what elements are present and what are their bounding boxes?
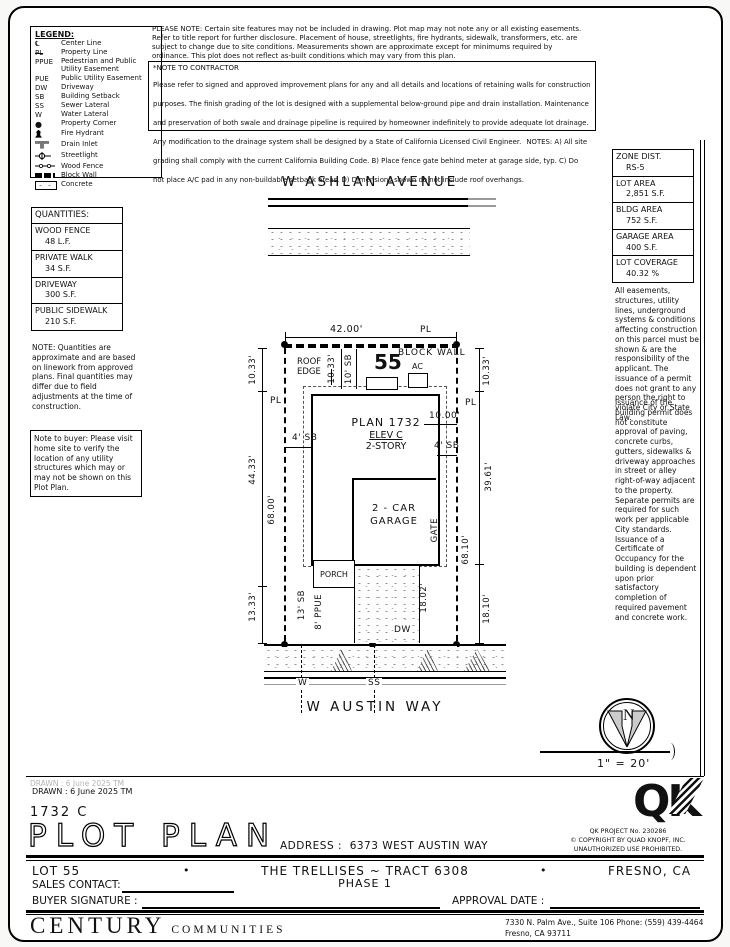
street-bottom-label: W AUSTIN WAY — [285, 699, 465, 715]
quantities-row: DRIVEWAY300 S.F. — [32, 278, 122, 305]
century-address-line2: Fresno, CA 93711 — [505, 928, 703, 939]
porch-label: PORCH — [320, 570, 348, 579]
dim-tick — [258, 391, 267, 392]
road-line — [468, 198, 496, 200]
fire-hydrant-icon — [35, 130, 42, 138]
roof-edge-leader — [331, 369, 332, 385]
quantities-row: WOOD FENCE48 L.F. — [32, 224, 122, 251]
property-corner — [281, 341, 288, 348]
footer-phase: PHASE 1 — [230, 877, 500, 890]
titleblock-rule — [26, 776, 704, 777]
dim-line — [286, 447, 311, 448]
ac-pad — [408, 373, 428, 388]
road-line — [468, 205, 496, 207]
property-line-right — [456, 348, 458, 641]
setback-symbol: SB — [35, 93, 61, 101]
legend-item: PPUEPedestrian and Public Utility Easeme… — [35, 58, 157, 74]
legend-item: Concrete — [35, 181, 157, 192]
plan-story: 2-STORY — [336, 441, 436, 452]
address-value: 6373 WEST AUSTIN WAY — [350, 840, 488, 852]
gate-label: GATE — [430, 518, 440, 542]
legend-item: ●Property Corner — [35, 120, 157, 129]
pl-label: PL — [465, 398, 476, 408]
contractor-note-body: Please refer to signed and approved impr… — [153, 81, 590, 146]
dim-side-sb-right: 4' SB — [434, 441, 459, 451]
dim-tick — [475, 643, 484, 644]
sales-contact-label: SALES CONTACT: — [32, 879, 121, 891]
quantities-title: QUANTITIES: — [32, 208, 122, 224]
sales-contact-line — [122, 891, 234, 893]
qk-copyright: © COPYRIGHT BY QUAD KNOPF, INC. — [552, 836, 704, 845]
quantities-table: QUANTITIES: WOOD FENCE48 L.F. PRIVATE WA… — [31, 207, 123, 331]
zoning-row: ZONE DIST.RS-5 — [613, 150, 693, 177]
plot-plan-sheet: { "legend": { "title": "LEGEND:", "items… — [0, 0, 730, 947]
driveway-symbol: DW — [35, 84, 61, 92]
sewer-lateral-label: SS — [366, 678, 382, 688]
century-logo-name: CENTURY — [30, 913, 165, 939]
address-label: ADDRESS : — [280, 840, 342, 852]
buyer-note-box: Note to buyer: Please visit home site to… — [30, 430, 142, 497]
legend-item: Streetlight — [35, 152, 157, 162]
legend-item: Block Wall — [35, 172, 157, 180]
dim-front-sb-depth: 10.33' — [327, 354, 337, 384]
quantities-row: PUBLIC SIDEWALK210 S.F. — [32, 304, 122, 330]
margin-line — [704, 140, 705, 776]
water-lateral-label: W — [296, 678, 309, 688]
please-note: PLEASE NOTE: Certain site features may n… — [152, 25, 588, 61]
garage-label: 2 - CAR — [352, 503, 436, 514]
dim-line — [356, 349, 357, 389]
drain-inlet-icon — [35, 141, 49, 149]
dim-side-sb-left: 4' SB — [292, 433, 317, 443]
porch-outline: PORCH — [313, 560, 355, 588]
zoning-row: BLDG AREA752 S.F. — [613, 203, 693, 230]
approval-date-label: APPROVAL DATE : — [452, 895, 544, 907]
legend-item: Drain Inlet — [35, 141, 157, 151]
property-line-symbol: PL — [35, 49, 61, 57]
plan-name: PLAN 1732 — [336, 416, 436, 429]
century-logo: CENTURY COMMUNITIES — [30, 913, 285, 939]
dim-tick — [258, 348, 267, 349]
ac-label: AC — [412, 362, 423, 371]
footer-lot: LOT 55 — [32, 864, 80, 878]
address-line: ADDRESS : 6373 WEST AUSTIN WAY — [280, 840, 488, 852]
streetlight-icon — [35, 152, 51, 160]
qk-project-number: QK PROJECT No. 230286 — [552, 827, 704, 836]
ppue-symbol: PPUE — [35, 58, 61, 66]
dim-line — [341, 349, 342, 389]
legend-item: PLProperty Line — [35, 49, 157, 57]
garage-label: GARAGE — [352, 516, 436, 527]
dim-left-bottom: 13.33' — [248, 592, 258, 622]
dim-top-width: 42.00' — [330, 324, 363, 335]
footer-tract: THE TRELLISES ~ TRACT 6308 — [230, 864, 500, 878]
zoning-row: LOT COVERAGE40.32 % — [613, 256, 693, 282]
dim-line — [262, 348, 263, 644]
plan-elev: ELEV C — [336, 430, 436, 441]
dim-left-depth: 68.00' — [267, 495, 277, 525]
legend-title: LEGEND: — [35, 30, 157, 39]
footer-bullet: • — [540, 864, 547, 877]
legend-item: PUEPublic Utility Easement — [35, 75, 157, 83]
sewer-symbol: SS — [35, 102, 61, 110]
buyer-signature-label: BUYER SIGNATURE : — [32, 895, 138, 907]
pue-symbol: PUE — [35, 75, 61, 83]
wood-fence-icon — [35, 163, 55, 169]
scale-label: 1" = 20' — [597, 757, 650, 770]
dim-street-sb: 13' SB — [297, 590, 307, 620]
quantities-note: NOTE: Quantities are approximate and are… — [32, 343, 138, 411]
north-arrow — [597, 696, 657, 756]
drawn-label: DRAWN : 6 June 2025 TM — [32, 787, 132, 796]
dim-right-bottom: 18.10' — [482, 594, 492, 624]
dim-front-sb: 10' SB — [344, 354, 354, 384]
qk-prohibited: UNAUTHORIZED USE PROHIBITED. — [552, 845, 704, 854]
centerline-symbol: ℄ — [35, 40, 61, 48]
dim-right-mid: 39.61' — [484, 462, 494, 492]
scale-bar-end — [666, 743, 675, 760]
dim-right-depth: 68.10' — [461, 535, 471, 565]
road-line — [268, 205, 468, 207]
legend-item: SBBuilding Setback — [35, 93, 157, 101]
block-wall-label: BLOCK WALL — [398, 348, 466, 358]
dim-tick — [475, 348, 484, 349]
contractor-note-title: *NOTE TO CONTRACTOR — [153, 64, 591, 72]
dim-tick — [258, 586, 267, 587]
driveway-label: DW — [394, 625, 411, 635]
legend-item: ℄Center Line — [35, 40, 157, 48]
legend-item: Wood Fence — [35, 163, 157, 171]
dim-ppue: 8' PPUE — [314, 594, 324, 630]
dim-left-mid: 44.33' — [248, 455, 258, 485]
house-bump — [366, 377, 398, 390]
garage-wall — [352, 478, 436, 480]
dim-line — [437, 455, 457, 456]
block-wall-icon — [35, 173, 55, 178]
dim-tick — [475, 564, 484, 565]
street-top-label: W ASHLAN AVENUE — [272, 174, 468, 190]
dim-line — [285, 337, 457, 338]
property-line-left — [284, 348, 286, 641]
sidewalk-concrete — [268, 229, 470, 255]
zoning-table: ZONE DIST.RS-5 LOT AREA2,851 S.F. BLDG A… — [612, 149, 694, 283]
dim-right-top: 10.33' — [482, 356, 492, 386]
zoning-row: LOT AREA2,851 S.F. — [613, 177, 693, 204]
legend-box: LEGEND: ℄Center Line PLProperty Line PPU… — [30, 26, 162, 178]
footer-bullet: • — [183, 864, 190, 877]
century-logo-sub: COMMUNITIES — [171, 924, 285, 936]
north-label: N — [623, 707, 635, 725]
dim-drive-depth: 18.02' — [419, 583, 429, 613]
pl-label: PL — [420, 325, 431, 335]
dim-tick — [475, 391, 484, 392]
buyer-signature-line — [142, 907, 440, 909]
legend-item: DWDriveway — [35, 84, 157, 92]
footer-rule — [26, 855, 704, 858]
dim-line — [479, 348, 480, 644]
footer-rule — [26, 860, 704, 861]
dim-garage-offset: 10.00' — [429, 411, 460, 421]
road-line — [268, 198, 468, 200]
quantities-row: PRIVATE WALK34 S.F. — [32, 251, 122, 278]
easement-note-2: Issuance of the building permit does not… — [615, 398, 699, 622]
legend-item: WWater Lateral — [35, 111, 157, 119]
margin-line — [700, 140, 701, 776]
concrete-icon — [35, 181, 57, 190]
sheet-title: PLOT PLAN — [28, 818, 278, 854]
dim-tick — [258, 643, 267, 644]
legend-item: SSSewer Lateral — [35, 102, 157, 110]
qk-credit-block: QK PROJECT No. 230286 © COPYRIGHT BY QUA… — [552, 827, 704, 854]
water-symbol: W — [35, 111, 61, 119]
dim-line — [424, 424, 457, 425]
zoning-row: GARAGE AREA400 S.F. — [613, 230, 693, 257]
contractor-note-box: *NOTE TO CONTRACTOR Please refer to sign… — [148, 61, 596, 131]
approval-date-line — [550, 907, 700, 909]
legend-item: Fire Hydrant — [35, 130, 157, 140]
century-address-block: 7330 N. Palm Ave., Suite 106 Phone: (559… — [505, 917, 703, 940]
scale-bar — [540, 751, 670, 753]
century-address-line1: 7330 N. Palm Ave., Suite 106 Phone: (559… — [505, 917, 703, 928]
sidewalk-edge — [268, 255, 470, 256]
property-corner-icon: ● — [35, 120, 61, 129]
dim-left-top: 10.33' — [248, 355, 258, 385]
footer-city: FRESNO, CA — [608, 864, 691, 878]
pl-label: PL — [270, 396, 281, 406]
property-corner — [453, 341, 460, 348]
roof-edge-label: ROOF EDGE — [297, 358, 321, 378]
